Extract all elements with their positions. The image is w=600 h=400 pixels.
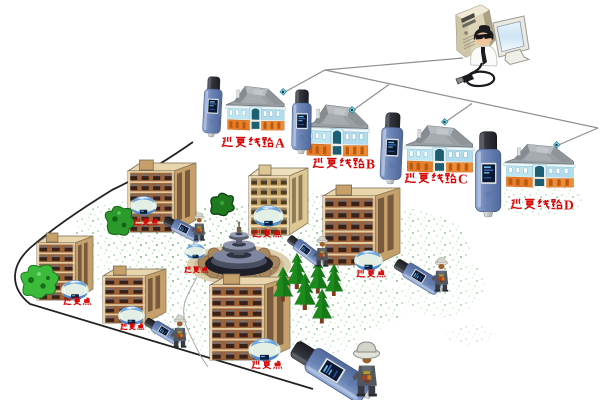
svg-text:A: A [275,136,285,151]
svg-text:D: D [564,198,574,213]
svg-text:C: C [458,172,468,187]
svg-text:B: B [366,157,375,172]
